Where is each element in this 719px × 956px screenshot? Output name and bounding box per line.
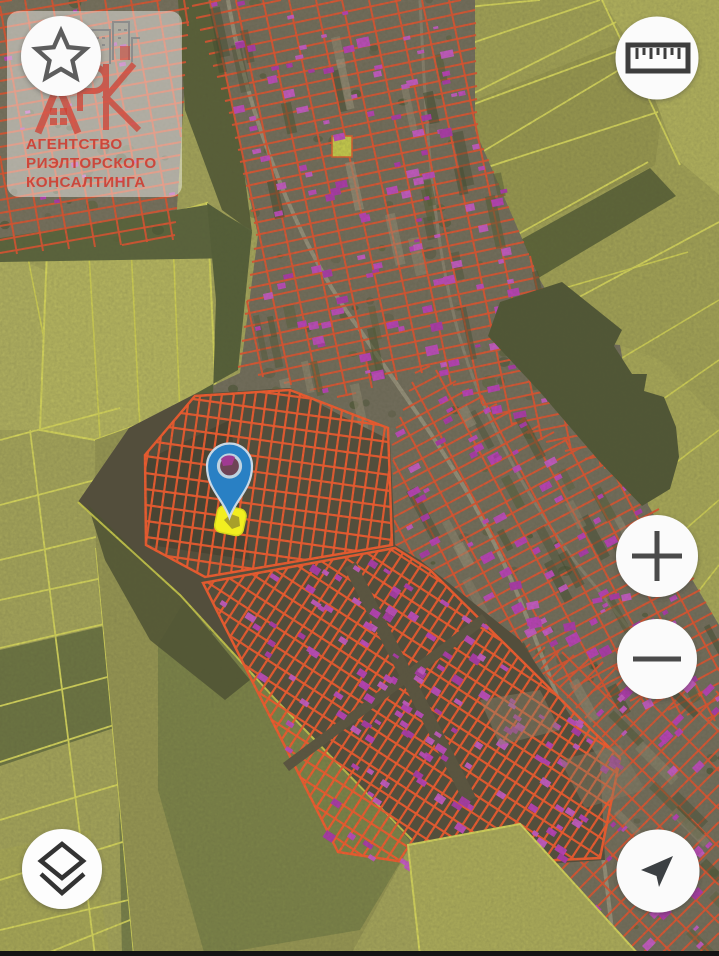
- svg-text:РИЭЛТОРСКОГО: РИЭЛТОРСКОГО: [26, 155, 157, 172]
- svg-text:КОНСАЛТИНГА: КОНСАЛТИНГА: [26, 174, 146, 191]
- svg-text:АГЕНТСТВО: АГЕНТСТВО: [26, 136, 123, 153]
